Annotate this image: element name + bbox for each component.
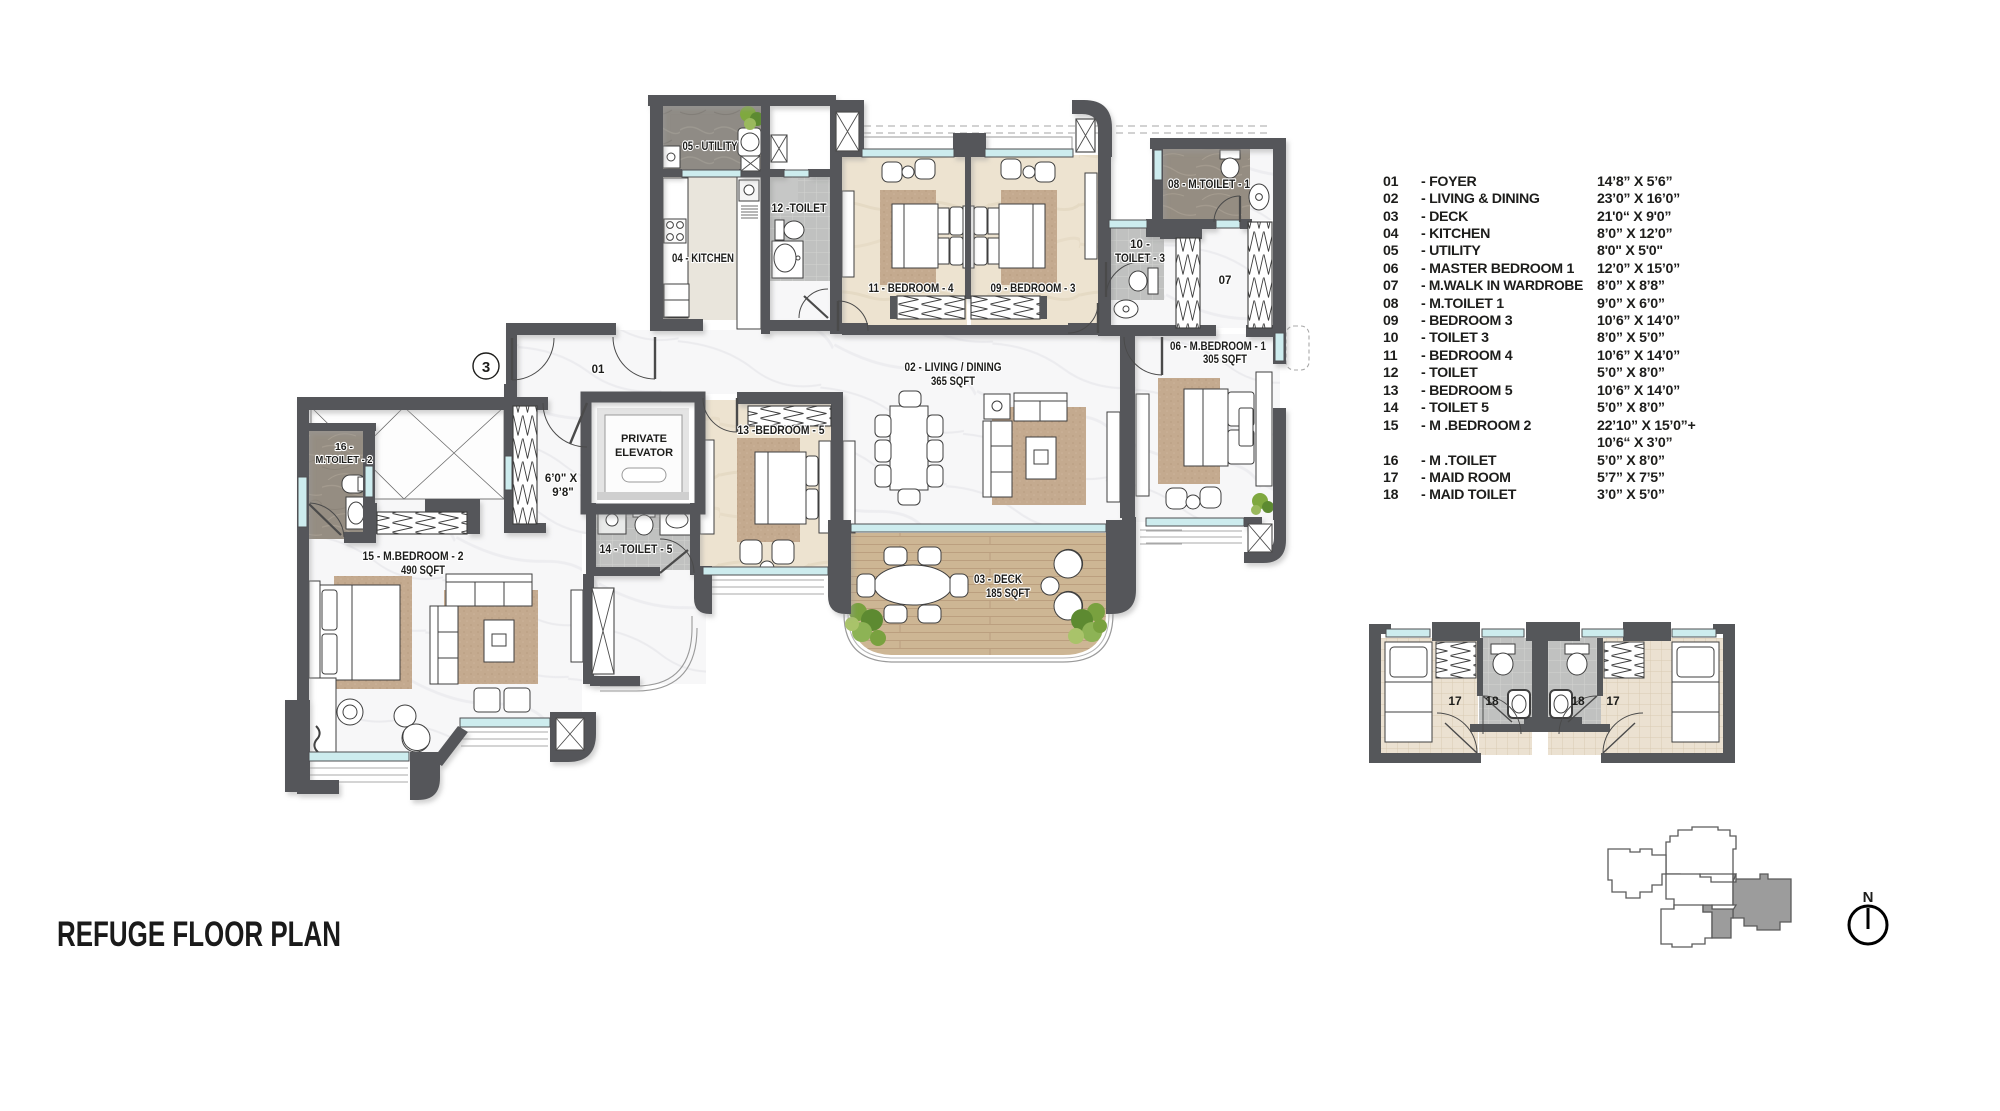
svg-text:15: 15 <box>1383 418 1399 434</box>
svg-text:- TOILET 5: - TOILET 5 <box>1421 400 1489 416</box>
svg-text:02: 02 <box>1383 191 1399 207</box>
svg-text:365 SQFT: 365 SQFT <box>931 376 975 388</box>
svg-text:14 - TOILET - 5: 14 - TOILET - 5 <box>600 544 674 556</box>
svg-text:- M.TOILET 1: - M.TOILET 1 <box>1421 296 1504 312</box>
svg-text:- UTILITY: - UTILITY <box>1421 243 1481 259</box>
svg-text:14’8” X 5’6”: 14’8” X 5’6” <box>1597 174 1672 190</box>
svg-text:- M.WALK IN WARDROBE: - M.WALK IN WARDROBE <box>1421 278 1583 294</box>
svg-text:11 - BEDROOM - 4: 11 - BEDROOM - 4 <box>869 283 955 295</box>
svg-text:07: 07 <box>1219 275 1232 287</box>
svg-text:04: 04 <box>1383 226 1399 242</box>
svg-text:18: 18 <box>1383 487 1399 503</box>
svg-text:5’7” X 7’5”: 5’7” X 7’5” <box>1597 470 1665 486</box>
svg-text:10’6” X 14’0”: 10’6” X 14’0” <box>1597 313 1680 329</box>
svg-text:03 - DECK: 03 - DECK <box>974 574 1023 586</box>
svg-text:490 SQFT: 490 SQFT <box>401 565 445 577</box>
svg-text:01: 01 <box>1383 174 1399 190</box>
svg-text:18: 18 <box>1571 694 1585 708</box>
svg-text:8’0” X 12’0”: 8’0” X 12’0” <box>1597 226 1672 242</box>
svg-text:07: 07 <box>1383 278 1399 294</box>
svg-text:16 -: 16 - <box>335 441 354 453</box>
svg-text:- KITCHEN: - KITCHEN <box>1421 226 1490 242</box>
svg-text:M.TOILET - 2: M.TOILET - 2 <box>316 454 373 466</box>
svg-text:TOILET - 3: TOILET - 3 <box>1115 253 1165 265</box>
svg-text:5’0” X 8’0”: 5’0” X 8’0” <box>1597 453 1665 469</box>
svg-text:- MASTER BEDROOM 1: - MASTER BEDROOM 1 <box>1421 261 1574 277</box>
svg-text:12’0” X 15’0”: 12’0” X 15’0” <box>1597 261 1680 277</box>
svg-text:- MAID ROOM: - MAID ROOM <box>1421 470 1511 486</box>
svg-text:REFUGE FLOOR PLAN: REFUGE FLOOR PLAN <box>57 915 341 954</box>
svg-text:- BEDROOM 5: - BEDROOM 5 <box>1421 383 1513 399</box>
svg-text:3: 3 <box>482 359 490 376</box>
svg-text:PRIVATE: PRIVATE <box>621 433 667 445</box>
svg-text:05 - UTILITY: 05 - UTILITY <box>683 141 738 153</box>
svg-text:- BEDROOM 3: - BEDROOM 3 <box>1421 313 1513 329</box>
svg-text:17: 17 <box>1606 694 1620 708</box>
svg-text:ELEVATOR: ELEVATOR <box>615 447 673 459</box>
svg-text:305 SQFT: 305 SQFT <box>1203 354 1247 366</box>
svg-text:17: 17 <box>1383 470 1399 486</box>
svg-text:17: 17 <box>1448 694 1462 708</box>
svg-text:10’6“ X 3’0”: 10’6“ X 3’0” <box>1597 435 1672 451</box>
svg-text:05: 05 <box>1383 243 1399 259</box>
svg-text:9’8": 9’8" <box>552 487 573 499</box>
svg-text:- TOILET 3: - TOILET 3 <box>1421 330 1489 346</box>
svg-text:5’0” X 8’0”: 5’0” X 8’0” <box>1597 365 1665 381</box>
svg-text:12: 12 <box>1383 365 1399 381</box>
svg-text:06 - M.BEDROOM - 1: 06 - M.BEDROOM - 1 <box>1170 341 1267 353</box>
svg-text:22’10” X 15’0”+: 22’10” X 15’0”+ <box>1597 418 1695 434</box>
svg-text:- TOILET: - TOILET <box>1421 365 1478 381</box>
svg-text:08: 08 <box>1383 296 1399 312</box>
svg-text:23’0” X 16’0”: 23’0” X 16’0” <box>1597 191 1680 207</box>
svg-text:09 - BEDROOM - 3: 09 - BEDROOM - 3 <box>991 283 1076 295</box>
svg-text:- BEDROOM 4: - BEDROOM 4 <box>1421 348 1513 364</box>
svg-text:13 -BEDROOM - 5: 13 -BEDROOM - 5 <box>738 425 826 437</box>
svg-text:8'0" X 5'0": 8'0" X 5'0" <box>1597 243 1663 259</box>
svg-text:08 - M.TOILET - 1: 08 - M.TOILET - 1 <box>1168 179 1251 191</box>
svg-text:04 - KITCHEN: 04 - KITCHEN <box>672 253 734 265</box>
svg-text:8’0” X 8’8”: 8’0” X 8’8” <box>1597 278 1665 294</box>
svg-text:185 SQFT: 185 SQFT <box>986 588 1030 600</box>
svg-text:- MAID TOILET: - MAID TOILET <box>1421 487 1517 503</box>
svg-text:11: 11 <box>1383 348 1398 364</box>
svg-text:- DECK: - DECK <box>1421 209 1469 225</box>
svg-text:10 -: 10 - <box>1130 239 1150 251</box>
svg-text:10’6” X 14’0”: 10’6” X 14’0” <box>1597 348 1680 364</box>
svg-text:10: 10 <box>1383 330 1399 346</box>
svg-text:18: 18 <box>1485 694 1499 708</box>
svg-text:14: 14 <box>1383 400 1399 416</box>
svg-text:6’0" X: 6’0" X <box>545 473 578 485</box>
svg-text:8’0” X 5’0”: 8’0” X 5’0” <box>1597 330 1665 346</box>
svg-text:03: 03 <box>1383 209 1399 225</box>
svg-text:N: N <box>1863 889 1874 906</box>
svg-text:01: 01 <box>592 364 605 376</box>
svg-text:- FOYER: - FOYER <box>1421 174 1476 190</box>
svg-text:21'0“ X 9'0”: 21'0“ X 9'0” <box>1597 209 1671 225</box>
svg-text:- LIVING & DINING: - LIVING & DINING <box>1421 191 1540 207</box>
svg-text:02 - LIVING / DINING: 02 - LIVING / DINING <box>905 362 1002 374</box>
svg-text:9’0” X 6’0”: 9’0” X 6’0” <box>1597 296 1665 312</box>
svg-text:- M .TOILET: - M .TOILET <box>1421 453 1497 469</box>
svg-text:13: 13 <box>1383 383 1399 399</box>
svg-text:15 - M.BEDROOM - 2: 15 - M.BEDROOM - 2 <box>363 551 464 563</box>
svg-text:09: 09 <box>1383 313 1399 329</box>
svg-text:06: 06 <box>1383 261 1399 277</box>
svg-text:3’0” X 5’0”: 3’0” X 5’0” <box>1597 487 1665 503</box>
svg-text:- M .BEDROOM 2: - M .BEDROOM 2 <box>1421 418 1531 434</box>
svg-text:5’0” X 8’0”: 5’0” X 8’0” <box>1597 400 1665 416</box>
svg-text:10’6” X 14’0”: 10’6” X 14’0” <box>1597 383 1680 399</box>
svg-text:16: 16 <box>1383 453 1399 469</box>
svg-text:12 -TOILET: 12 -TOILET <box>772 203 827 215</box>
